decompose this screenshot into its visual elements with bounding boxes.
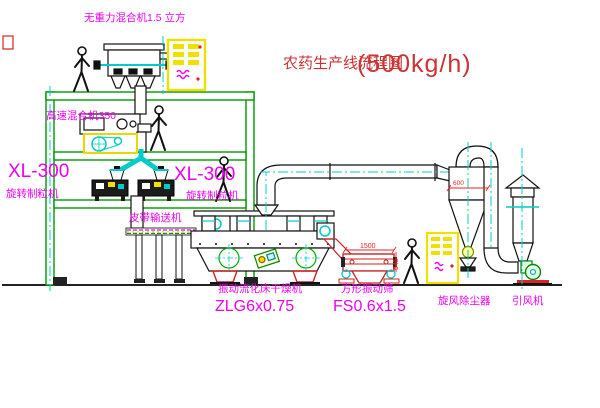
dryer-exhaust-duct (255, 163, 450, 215)
induced-draft-fan (513, 261, 552, 284)
label-granulator-left-model: XL-300 (8, 161, 69, 182)
fan-scroll (526, 265, 541, 280)
worker-ground (404, 239, 419, 283)
cyclone-dust-collector (449, 146, 518, 273)
label-granulator-left-name: 旋转制粒机 (6, 187, 59, 200)
worker-roof (74, 47, 89, 91)
wall-foundation (53, 277, 67, 285)
roof-slab (46, 92, 254, 100)
gravity-free-mixer (94, 44, 172, 114)
indicator-light-2 (196, 77, 199, 80)
control-cabinet-top (168, 40, 205, 90)
cyclone-top-elbow (456, 146, 498, 167)
dryer-foot-left (213, 271, 237, 282)
label-dryer-name: 振动流化床干燥机 (218, 282, 302, 295)
worker-floor2 (151, 106, 166, 150)
label-sieve-model: FS0.6x1.5 (333, 298, 406, 315)
label-belt-conveyor: 皮带输送机 (129, 211, 182, 224)
diagram-capacity: (500kg/h) (357, 50, 472, 78)
label-cyclone: 旋风除尘器 (438, 294, 491, 307)
control-cabinet-fan (427, 233, 458, 283)
dim-sieve-length: 1500 (360, 243, 376, 250)
label-granulator-mid-model: XL-300 (174, 164, 235, 185)
stack-body (513, 197, 533, 243)
process-flow-diagram: 农药生产线流程图 (500kg/h) 无重力混合机1.5 立方 高速混合机350… (0, 0, 600, 403)
belt-conveyor (126, 228, 196, 283)
dim-sieve-height: 545 (393, 258, 400, 270)
label-sieve-name: 方形振动筛 (341, 282, 394, 295)
indicator-light (198, 45, 201, 48)
dryer-deck (191, 231, 334, 248)
label-fan: 引风机 (512, 294, 544, 307)
sieve-base (352, 271, 387, 283)
cabinet2-indicator (450, 264, 453, 267)
granulator-left (92, 166, 128, 201)
label-high-speed-mixer: 高速混合机350 (46, 109, 116, 122)
label-gravity-free-mixer: 无重力混合机1.5 立方 (84, 11, 186, 24)
pipe-bottom-elbow (484, 248, 518, 273)
fluid-bed-dryer (191, 211, 334, 283)
legend-mark (3, 36, 13, 49)
dim-cyclone-diameter: 600 (453, 180, 464, 187)
second-floor-slab (54, 152, 246, 160)
dryer-foot-right (293, 271, 317, 282)
label-dryer-model: ZLG6x0.75 (215, 298, 294, 315)
label-granulator-mid-name: 旋转制粒机 (186, 189, 239, 202)
vibrating-sieve (339, 254, 399, 283)
mixer-discharge-duct (135, 86, 146, 114)
